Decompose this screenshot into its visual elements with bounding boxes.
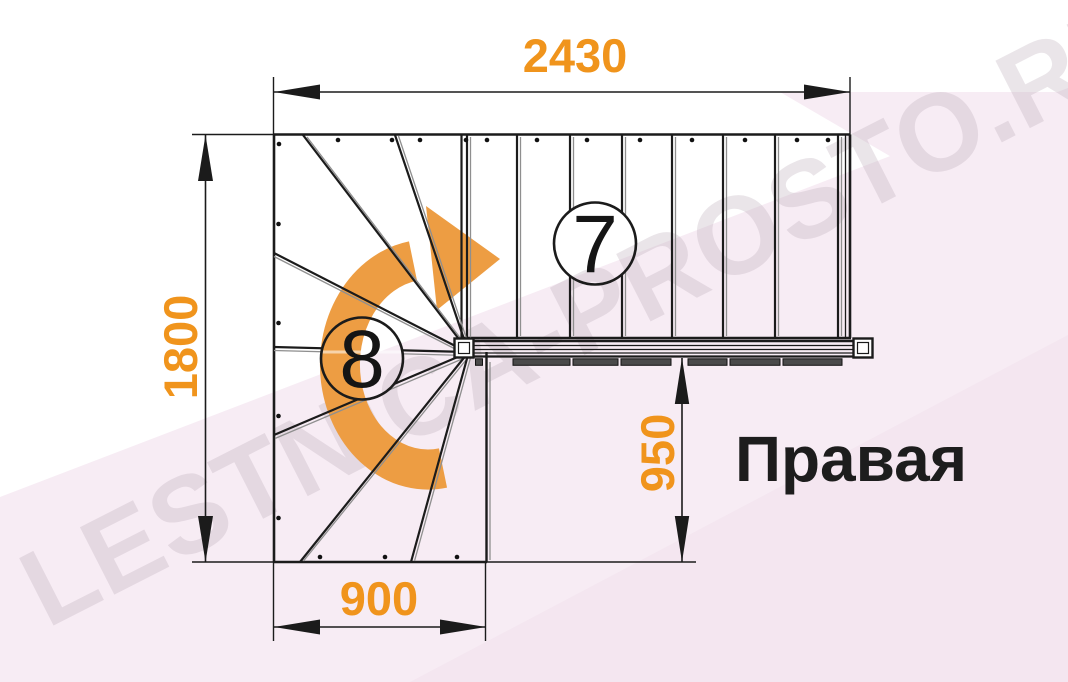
winder-step-count: 8 [339,314,385,405]
upper-flight-step-count: 7 [572,199,618,290]
stair-linework [192,77,853,641]
handrail-segments [476,359,843,366]
upper-flight-steps [462,135,842,338]
stringer [473,341,853,357]
newel-post-center [455,339,474,358]
stair-direction-label: Правая [735,423,967,495]
dimension-total-length: 2430 [523,29,628,82]
dimension-exit-width: 950 [631,414,684,492]
dimension-total-depth: 1800 [154,295,207,400]
newel-post-end [854,339,873,358]
dimension-entry-width: 900 [340,572,418,625]
stair-plan: 7 8 2430 1800 950 900 Правая [0,0,1068,682]
staircase-drawing-canvas: LESTNICA-PROSTO.RU [0,0,1068,682]
